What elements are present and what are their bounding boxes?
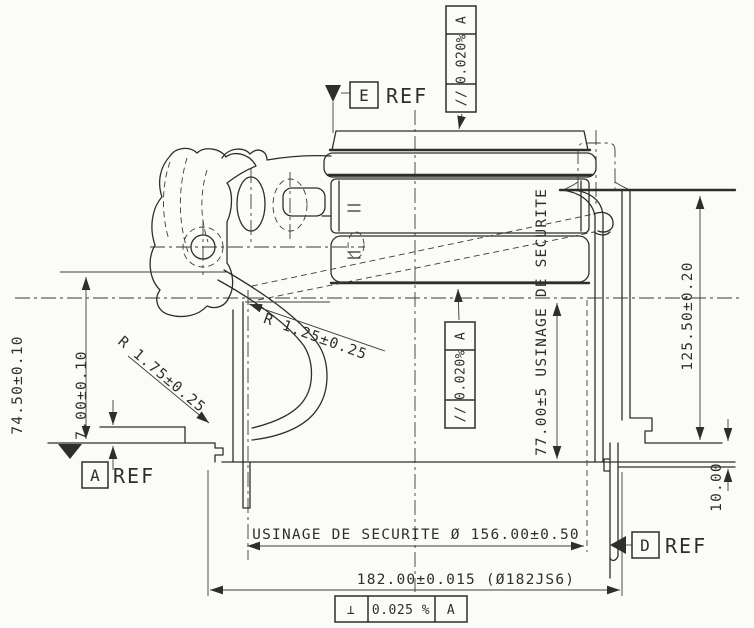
fcf-bottom: ⊥ 0.025 % A (335, 596, 467, 622)
fcf-top: A 0.020% // (446, 6, 476, 129)
casting-outline (150, 148, 364, 316)
datum-e-ref: REF (386, 84, 428, 108)
fcf-top-datum: A (455, 16, 470, 24)
technical-drawing-sheet: 74.50±0.10 7.00±0.10 R 1.75±0.25 R 1.25±… (0, 0, 754, 628)
datum-e-letter: E (359, 86, 369, 105)
fcf-bottom-datum: A (447, 603, 455, 618)
fcf-bottom-value: 0.025 % (372, 603, 430, 618)
datum-d: D REF (610, 532, 707, 558)
datum-d-letter: D (640, 536, 650, 555)
dim-right-rim: 10.00 (709, 462, 725, 512)
dim-radius-small: R 1.25±0.25 (261, 311, 369, 363)
dim-safety-bore: USINAGE DE SECURITE Ø 156.00±0.50 (252, 527, 580, 543)
datum-e: E REF (325, 82, 428, 133)
fcf-top-value: 0.020% (455, 34, 470, 84)
dim-safety-depth: 77.00±5 USINAGE DE SECURITE (534, 188, 550, 456)
cylinder-block (324, 131, 596, 283)
datum-d-ref: REF (665, 534, 707, 558)
datum-a-ref: REF (113, 464, 155, 488)
hidden-rod-lines (252, 212, 613, 300)
dim-left-height: 74.50±0.10 (10, 335, 26, 434)
datum-a-letter: A (90, 466, 100, 485)
fcf-top-parallelism-icon: // (455, 90, 470, 107)
cable-arcs (218, 270, 327, 440)
fcf-middle-datum: A (454, 332, 469, 340)
datum-triangle-icon (58, 444, 82, 459)
fcf-middle-parallelism-icon: // (454, 406, 469, 423)
fcf-middle: A 0.020% // (445, 289, 475, 428)
datum-a: A REF (58, 444, 155, 488)
datum-triangle-icon (325, 85, 341, 102)
fcf-middle-value: 0.020% (454, 350, 469, 400)
dim-left-step: 7.00±0.10 (74, 350, 90, 439)
dim-right-height: 125.50±0.20 (680, 261, 696, 370)
fcf-bottom-perpendicularity-icon: ⊥ (347, 603, 355, 618)
section-view: 74.50±0.10 7.00±0.10 R 1.75±0.25 R 1.25±… (0, 0, 754, 628)
dim-outer-diameter: 182.00±0.015 (Ø182JS6) (357, 572, 575, 588)
dim-radius-large: R 1.75±0.25 (115, 334, 209, 416)
